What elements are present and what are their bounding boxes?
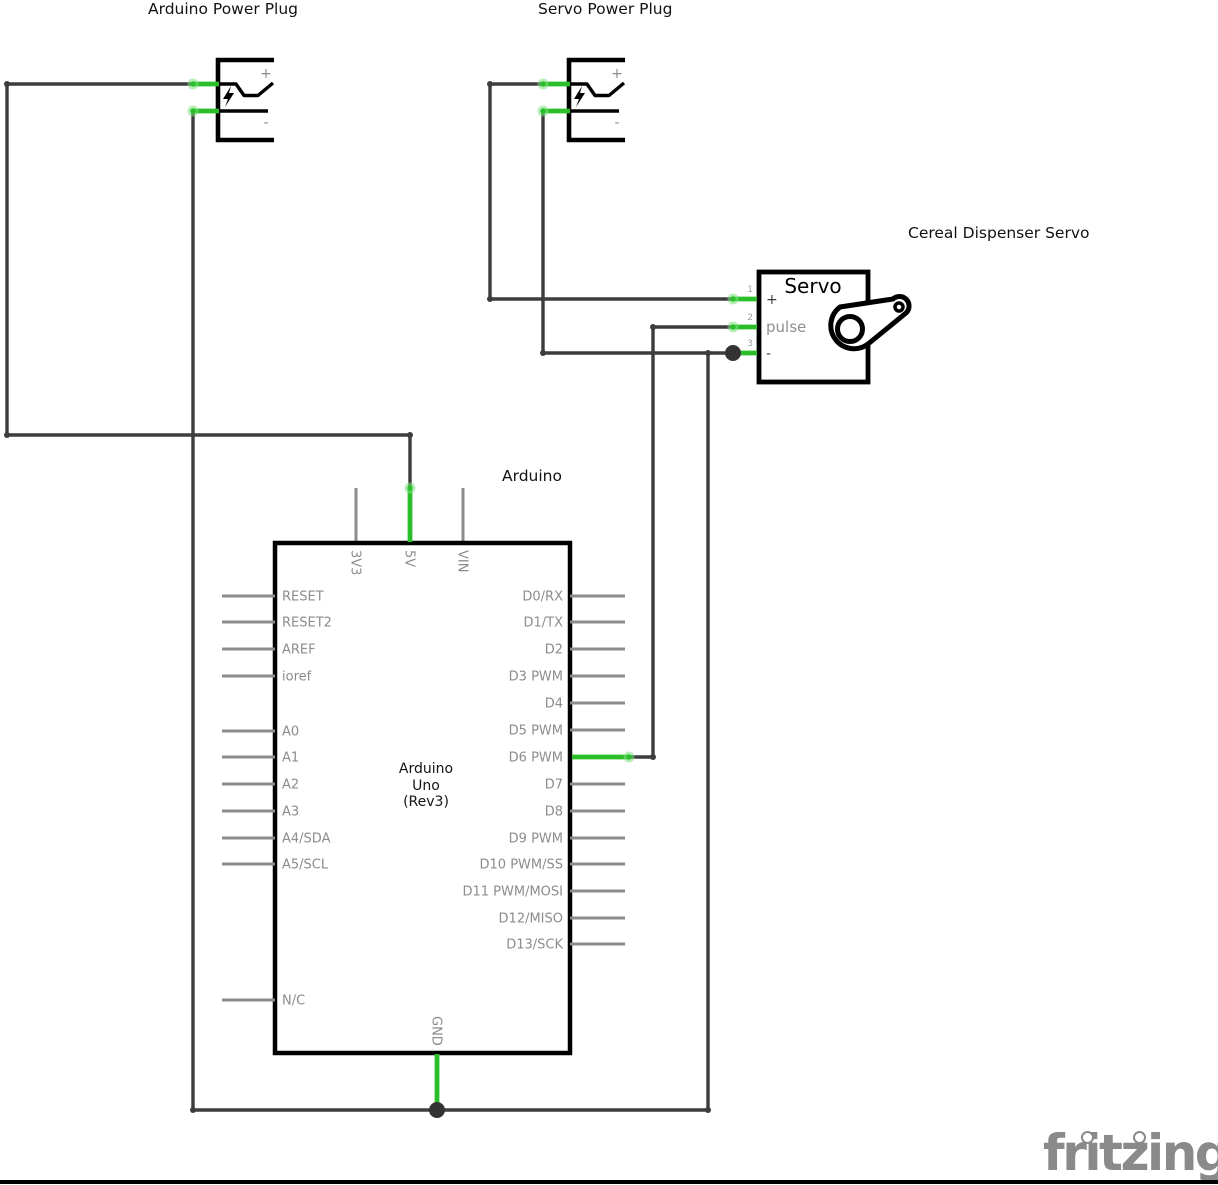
pin-label: D1/TX [523,616,563,631]
pin-label: D11 PWM/MOSI [462,885,563,900]
wire [7,84,410,489]
pin-label: - [766,346,771,362]
plug-minus-label: - [263,115,268,131]
pin-label: D0/RX [522,590,563,605]
wire-corner-dot [540,350,546,356]
wire-end-dot [730,324,735,329]
pin-label: A5/SCL [282,858,329,873]
wire-corner-dot [650,754,656,760]
wire [627,327,738,757]
wire-end-dot [730,296,735,301]
logo-ring [1081,1131,1094,1144]
bottom-border [0,1180,1218,1184]
pin-label: D2 [545,643,563,658]
servo-power-plug-title: Servo Power Plug [538,0,672,18]
pin-label: N/C [282,994,305,1009]
pin-label: D4 [545,697,563,712]
pin-label: AREF [282,643,316,658]
wire-corner-dot [650,324,656,330]
logo-ring [1133,1131,1146,1144]
pin-label: 5V [402,550,417,567]
wire-end-dot [540,108,545,113]
wire-end-dot [407,485,412,490]
pin-label: D10 PWM/SS [480,858,563,873]
wire-corner-dot [705,1107,711,1113]
arduino-part-label-line: Uno [366,778,486,795]
pin-label: RESET [282,590,324,605]
wire-end-dot [190,81,195,86]
arduino-power-plug-title: Arduino Power Plug [148,0,298,18]
pin-label: D12/MISO [499,912,563,927]
junction-dot [725,345,741,361]
pin-label: VIN [455,550,470,572]
junction-dot [429,1102,445,1118]
wire-corner-dot [487,81,493,87]
wire-corner-dot [705,350,711,356]
pin-number: 1 [747,285,753,295]
pin-label: pulse [766,318,806,336]
pin-label: GND [429,1016,444,1046]
arduino-part-label-line: Arduino [366,761,486,778]
plug-minus-label: - [614,115,619,131]
wire-corner-dot [190,1107,196,1113]
pin-number: 3 [747,339,753,349]
wire-end-dot [540,81,545,86]
wire-end-dot [626,754,631,759]
arduino-part-label-line: (Rev3) [366,794,486,811]
plug-plus-label: + [260,66,272,82]
servo-horn-tip-hole [895,303,903,311]
wire-corner-dot [407,432,413,438]
fritzing-logo: fritzing [1043,1124,1218,1182]
pin-label: A0 [282,725,299,740]
pin-label: D7 [545,778,563,793]
lightning-bolt-icon [574,86,585,107]
pin-label: A4/SDA [282,832,331,847]
pin-label: D8 [545,805,563,820]
lightning-bolt-icon [223,86,234,107]
plug-plus-label: + [611,66,623,82]
pin-label: A2 [282,778,299,793]
wire-corner-dot [4,432,10,438]
servo-title: Servo [784,274,841,298]
power-plug-plus-contact [569,83,624,96]
pin-number: 2 [747,313,753,323]
pin-label: ioref [282,670,312,685]
wire-corner-dot [487,296,493,302]
cereal-dispenser-servo-label: Cereal Dispenser Servo [908,224,1090,242]
servo-horn-hub [838,317,863,342]
pin-label: RESET2 [282,616,332,631]
wire-end-dot [190,108,195,113]
wire-corner-dot [4,81,10,87]
pin-label: + [766,292,778,308]
power-plug-plus-contact [218,83,273,96]
schematic: +-+-RESETRESET2AREFiorefA0A1A2A3A4/SDAA5… [0,0,1218,1185]
pin-label: D13/SCK [506,938,563,953]
pin-label: A1 [282,751,299,766]
pin-label: D3 PWM [509,670,563,685]
pin-label: A3 [282,805,299,820]
pin-label: 3V3 [348,550,363,575]
arduino-title: Arduino [502,467,562,485]
pin-label: D6 PWM [509,751,563,766]
arduino-part-label: Arduino Uno (Rev3) [366,761,486,811]
schematic-canvas: +-+-RESETRESET2AREFiorefA0A1A2A3A4/SDAA5… [0,0,1218,1185]
pin-label: D5 PWM [509,724,563,739]
pin-label: D9 PWM [509,832,563,847]
